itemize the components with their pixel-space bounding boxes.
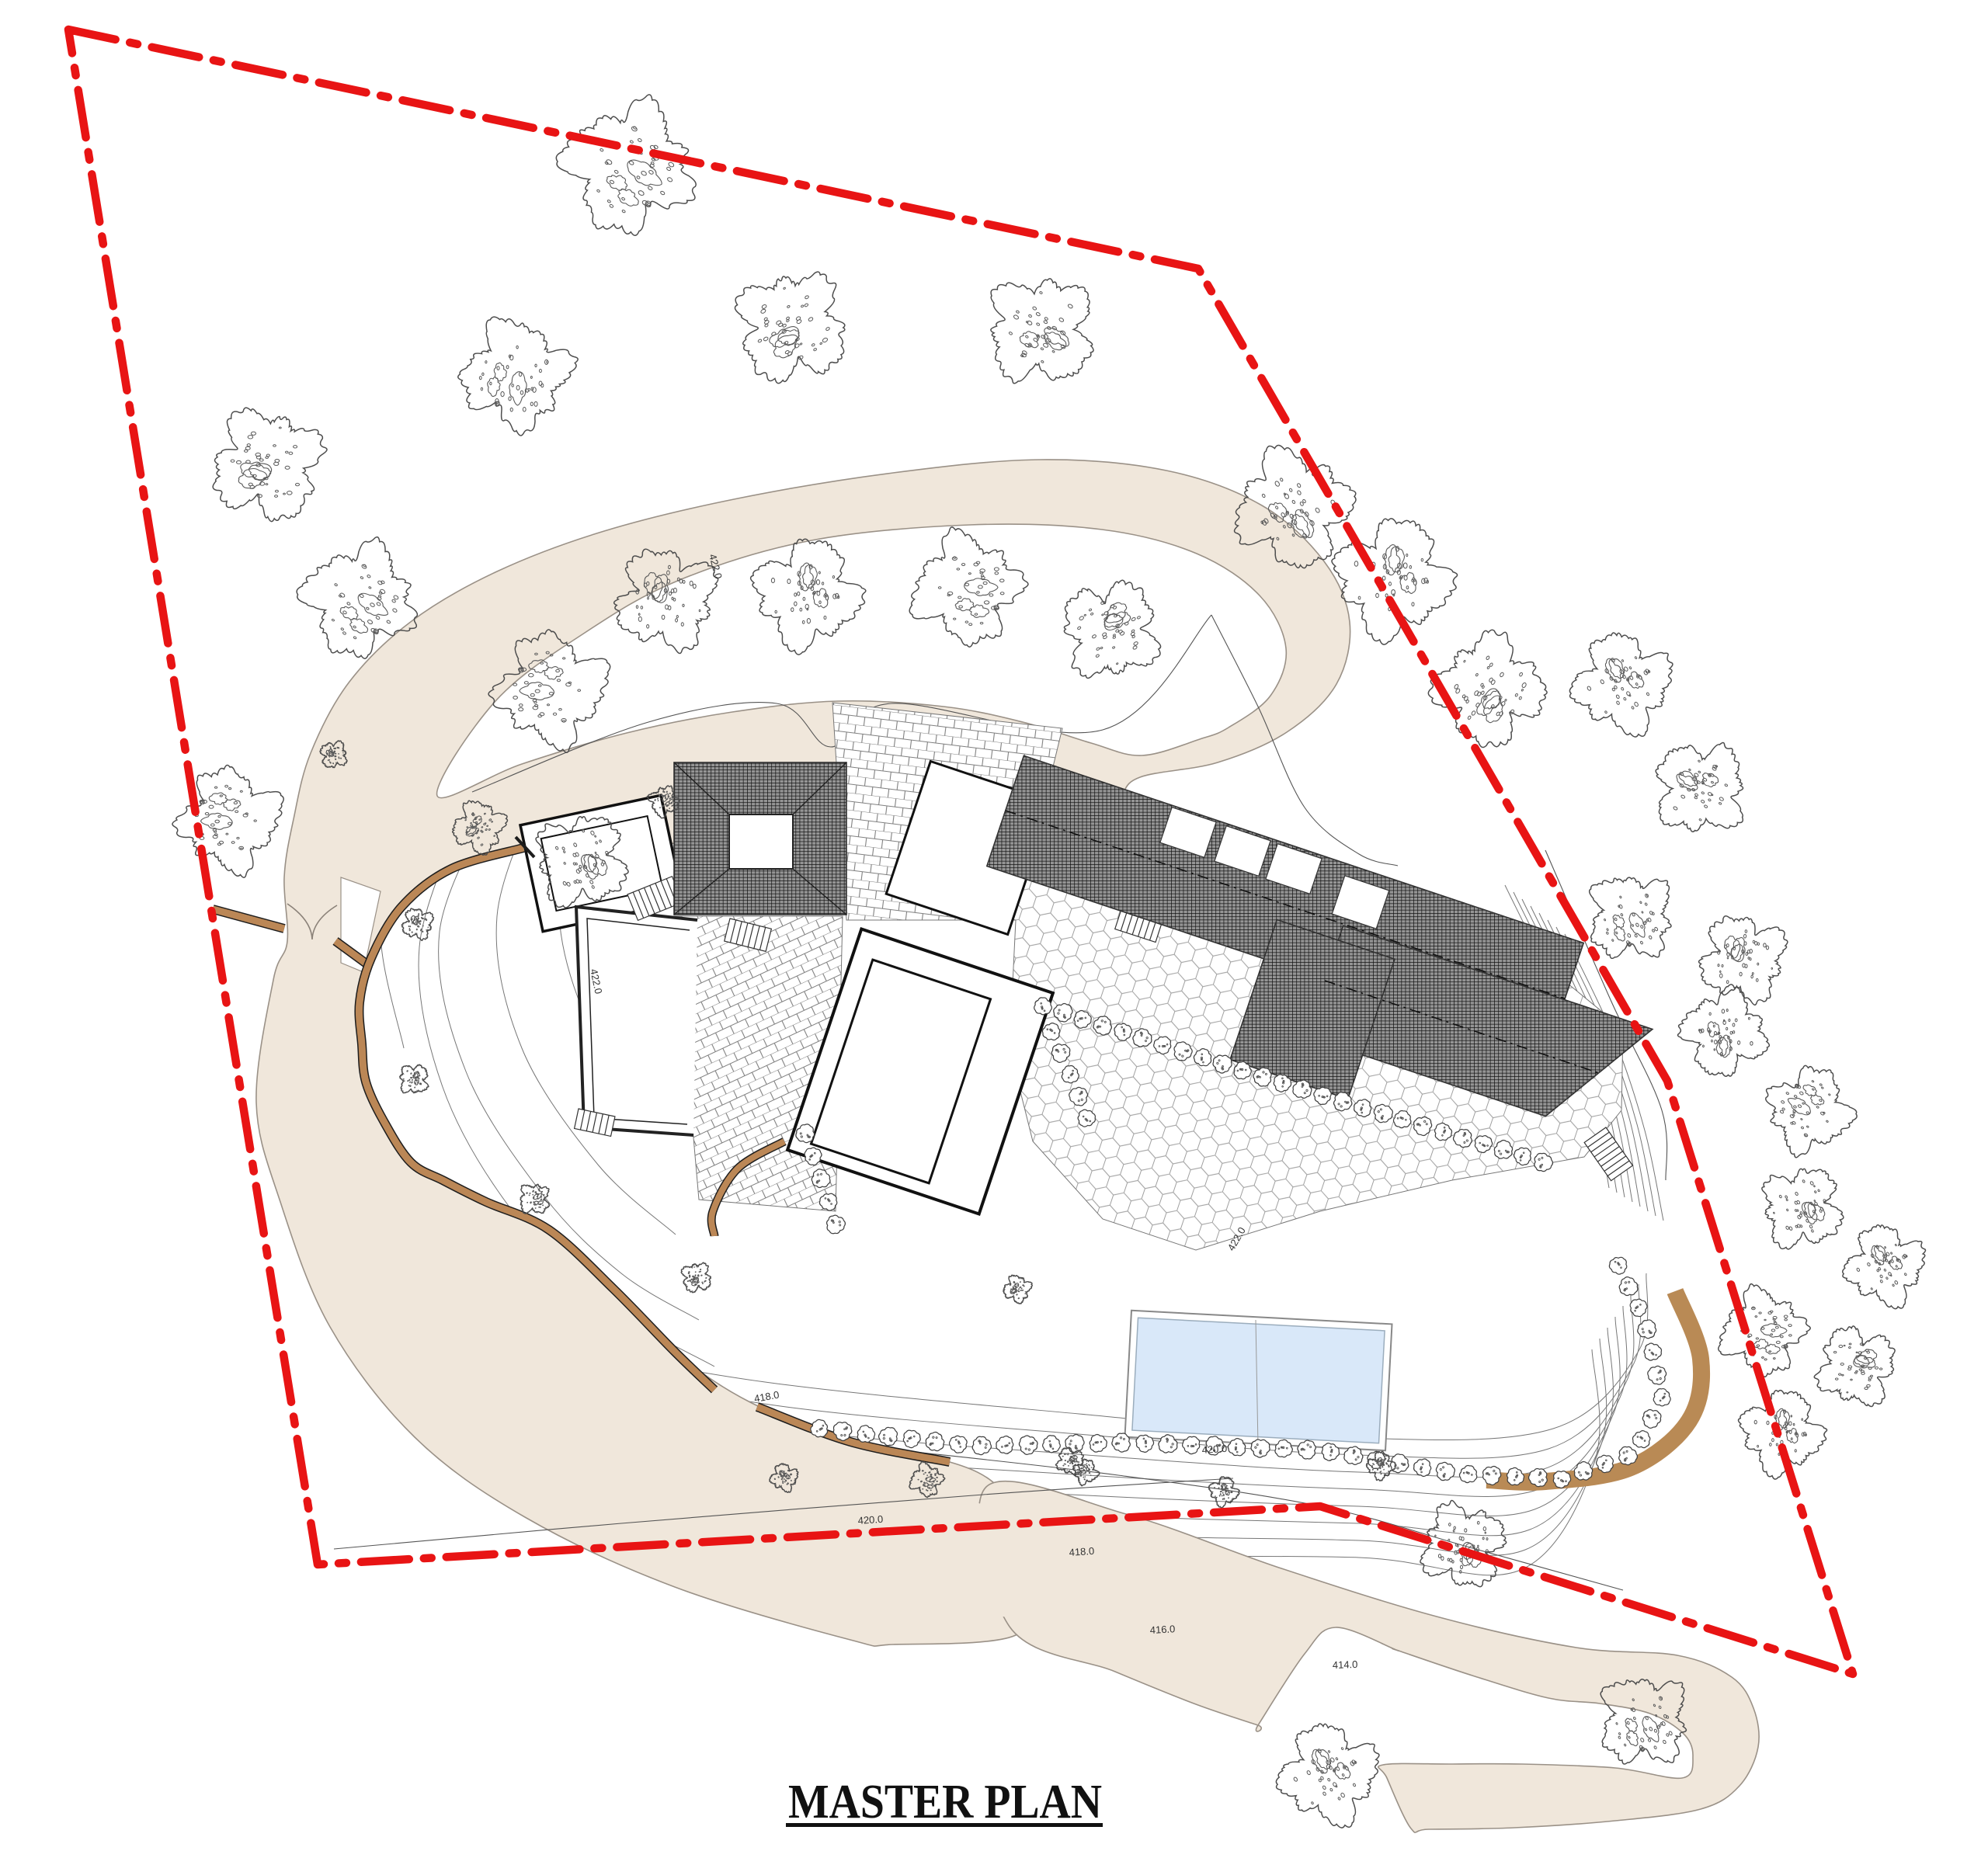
svg-text:416.0: 416.0 bbox=[1149, 1623, 1175, 1636]
svg-text:420.0: 420.0 bbox=[857, 1513, 884, 1526]
svg-text:MASTER PLAN: MASTER PLAN bbox=[788, 1776, 1102, 1828]
svg-text:420.0: 420.0 bbox=[1201, 1443, 1228, 1456]
svg-text:418.0: 418.0 bbox=[1069, 1545, 1095, 1558]
svg-text:414.0: 414.0 bbox=[1333, 1658, 1358, 1671]
